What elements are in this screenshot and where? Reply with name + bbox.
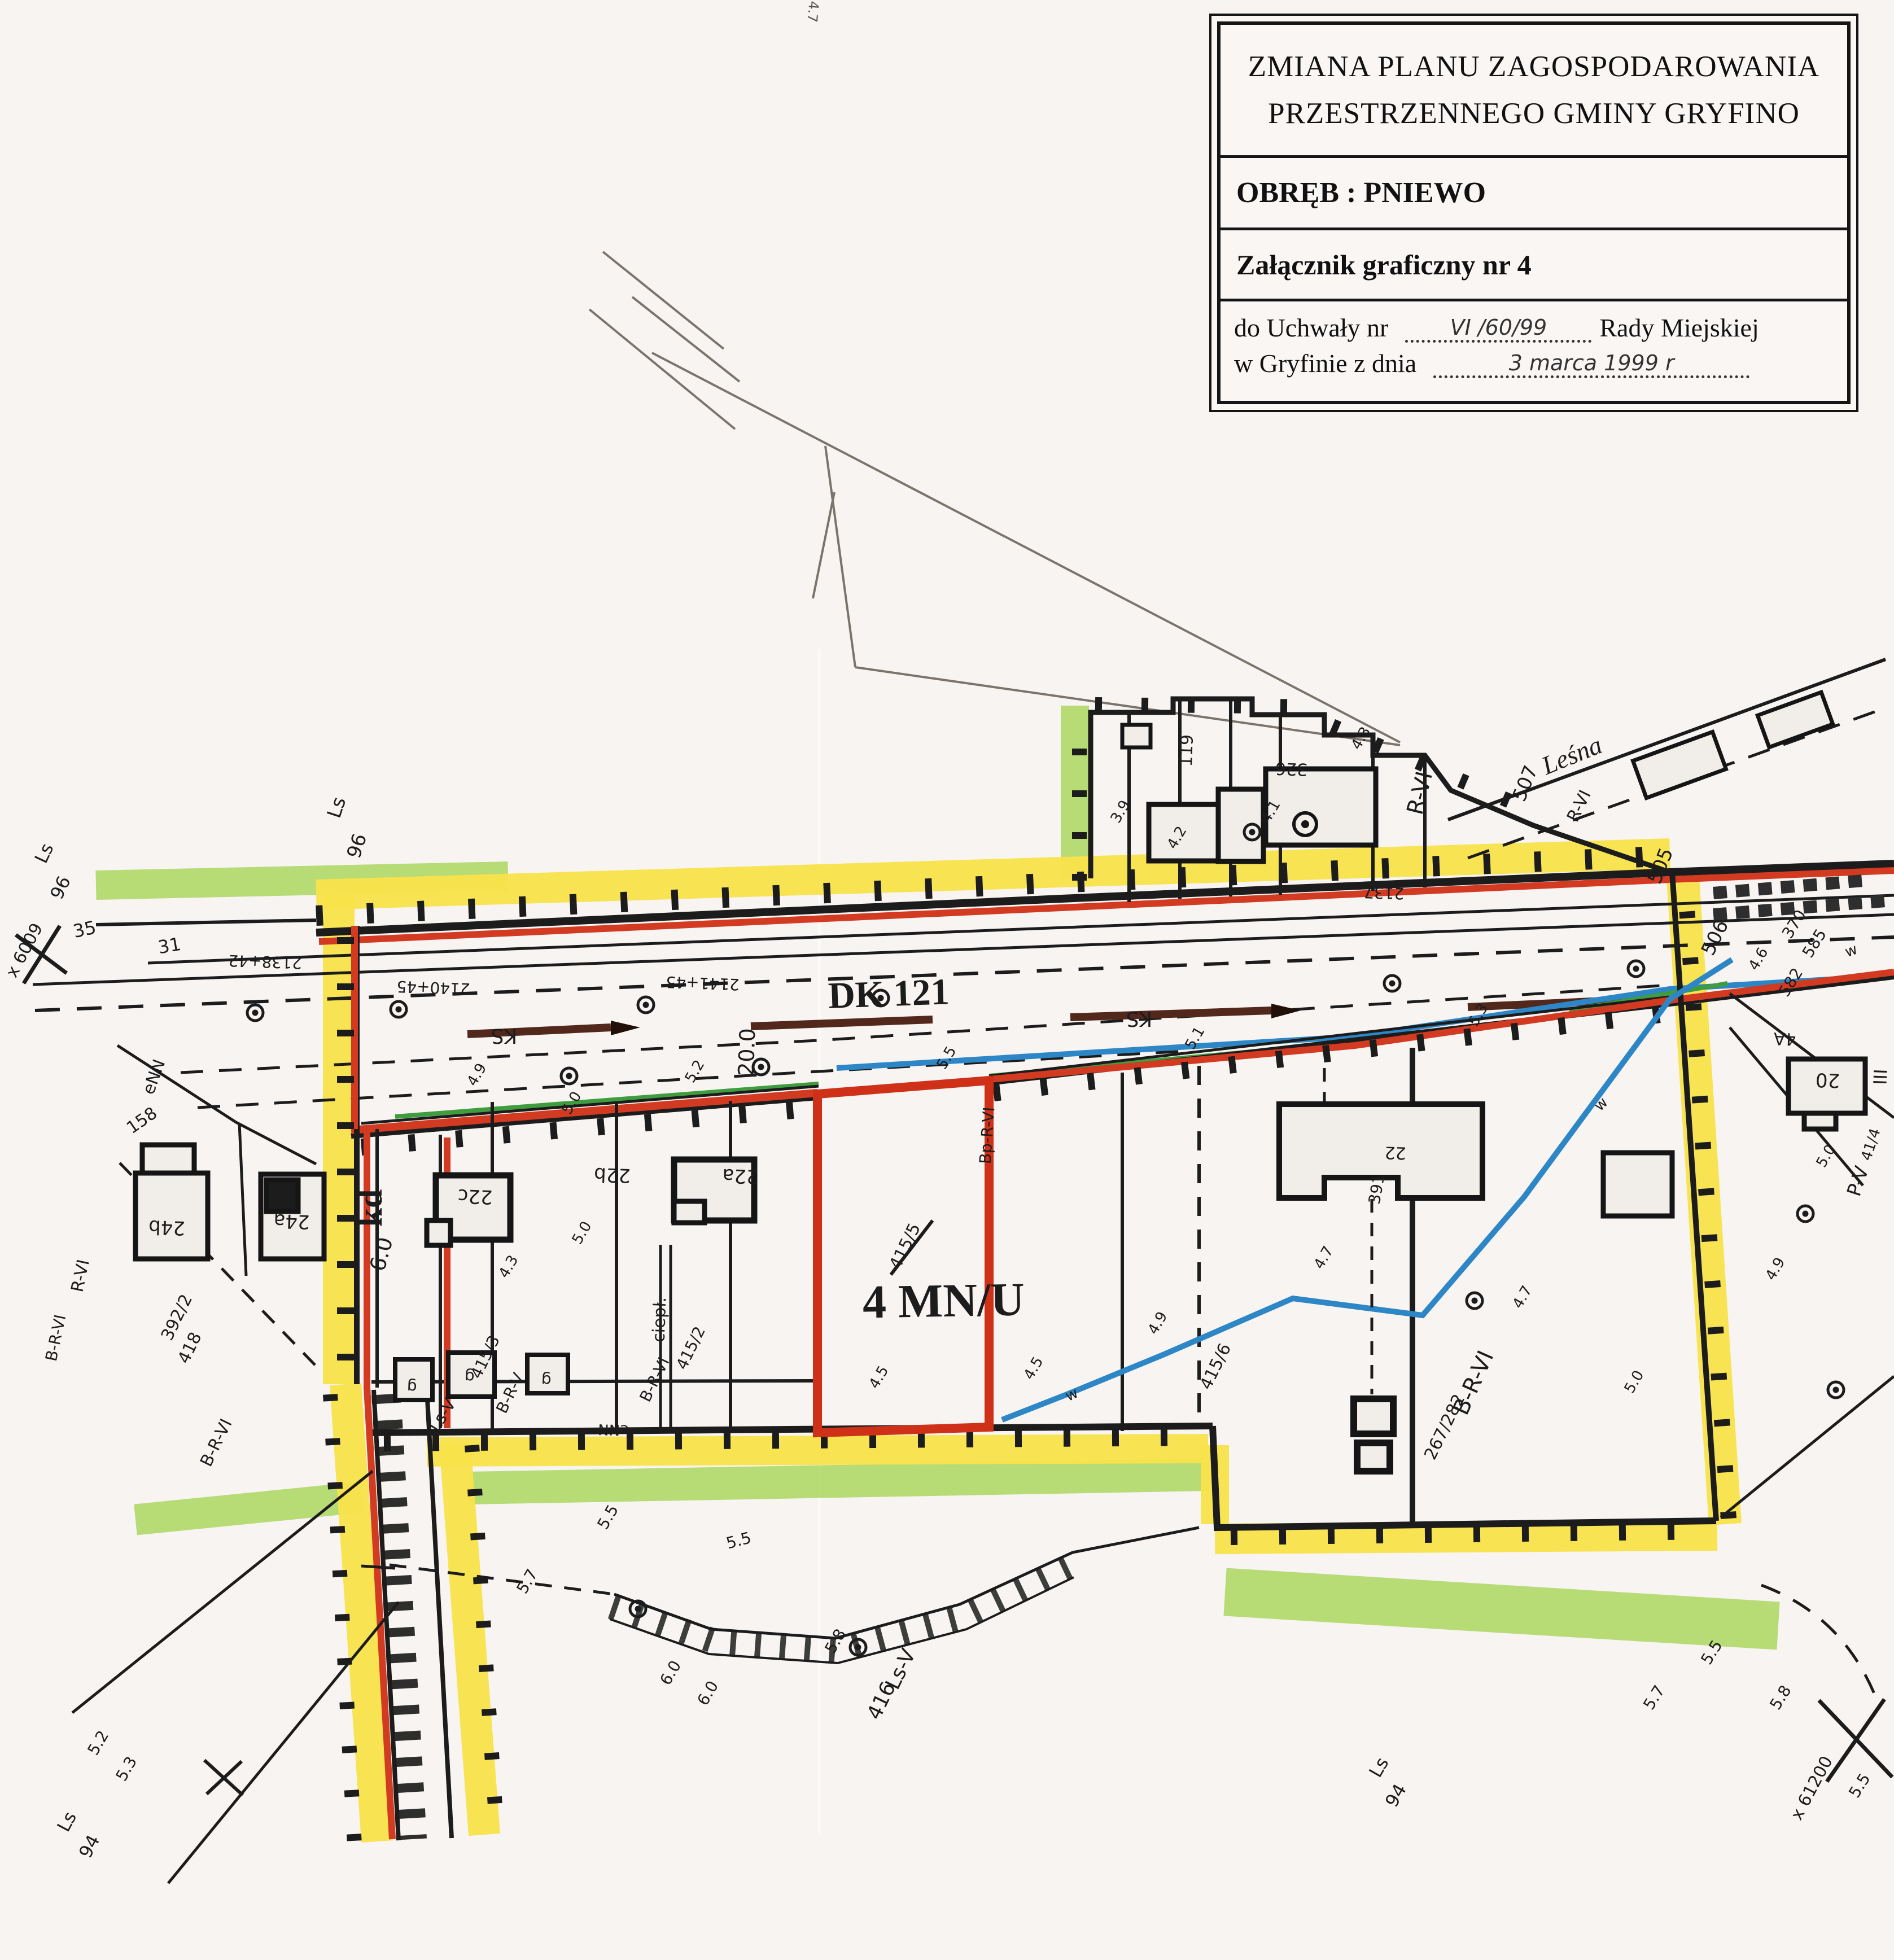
map-label: 5.8 — [1766, 1682, 1795, 1713]
map-label: 415/2 — [672, 1323, 709, 1372]
map-label: 5.5 — [593, 1502, 622, 1533]
title-block: ZMIANA PLANU ZAGOSPODAROWANIA PRZESTRZEN… — [1209, 14, 1858, 412]
map-label: 4.9 — [1145, 1309, 1171, 1338]
map-label: 326 — [1275, 758, 1307, 779]
map-label: 2140+45 — [396, 977, 470, 999]
map-label: DK 121 — [828, 971, 950, 1016]
map-label: 4.9 — [1762, 1255, 1789, 1284]
title-block-inner: ZMIANA PLANU ZAGOSPODAROWANIA PRZESTRZEN… — [1217, 21, 1851, 404]
map-label: 4A — [1773, 1028, 1796, 1048]
map-label: Ls — [323, 794, 351, 821]
map-label: 5.7 — [513, 1566, 541, 1597]
obreb-row: OBRĘB : PNIEWO — [1221, 158, 1847, 230]
map-label: 22b — [594, 1163, 631, 1187]
map-label: w — [1843, 941, 1860, 961]
plan-title-line1: ZMIANA PLANU ZAGOSPODAROWANIA — [1221, 43, 1847, 90]
tree-symbol — [561, 1068, 577, 1084]
map-label: 4.6 — [1746, 945, 1772, 974]
map-label: 2141+45 — [666, 973, 740, 994]
uchwala-number-handwritten: VI /60/99 — [1405, 316, 1591, 343]
map-label: 24a — [273, 1209, 310, 1233]
uchwala-prefix: do Uchwały nr — [1234, 313, 1388, 343]
map-label: ciepł. — [649, 1297, 671, 1343]
map-label: 5.7 — [1639, 1682, 1669, 1713]
scanned-plan-sheet: { "title_block": { "line1": "ZMIANA PLAN… — [0, 0, 1894, 1960]
map-label: 415/5 — [886, 1220, 925, 1272]
tree-symbol — [391, 1001, 406, 1017]
uchwala-suffix: Rady Miejskiej — [1599, 313, 1759, 343]
date-handwritten: 3 marca 1999 r — [1433, 352, 1749, 378]
tree-symbol — [1467, 1293, 1482, 1309]
map-label: 5.3 — [112, 1753, 141, 1784]
tree-symbol — [1828, 1382, 1844, 1398]
map-label: 4.9 — [464, 1061, 491, 1090]
map-label: 31 — [156, 933, 183, 958]
map-label: kd — [352, 1189, 389, 1227]
plan-title: ZMIANA PLANU ZAGOSPODAROWANIA PRZESTRZEN… — [1221, 25, 1847, 158]
map-label: 5.5 — [1845, 1770, 1874, 1801]
map-label: 507 — [1508, 762, 1542, 804]
map-label: g — [406, 1378, 417, 1397]
map-label: B-R-VI — [42, 1313, 70, 1363]
map-label: eNN — [598, 1420, 629, 1438]
map-label: R-VI — [1402, 769, 1438, 817]
flow-arrow — [1271, 1004, 1301, 1018]
map-label: B-R-VI — [196, 1416, 237, 1470]
map-label: R-VI — [1563, 787, 1595, 825]
map-label: 5.5 — [724, 1528, 754, 1552]
map-label: R-VI — [68, 1258, 94, 1294]
map-label: Ls — [53, 1808, 81, 1835]
map-label: Ls — [1364, 1753, 1393, 1781]
map-label: 5.0 — [1813, 1142, 1840, 1171]
map-label: 94 — [75, 1831, 104, 1862]
map-label: 94 — [1381, 1780, 1411, 1810]
map-label: 96 — [46, 873, 75, 903]
map-label: III — [1870, 1069, 1892, 1086]
map-label: 585 — [1799, 926, 1830, 961]
tree-symbol — [1384, 975, 1400, 991]
map-label: 2138+42 — [228, 951, 302, 973]
map-label: 5.0 — [1621, 1368, 1648, 1397]
map-label: 5.5 — [934, 1044, 960, 1073]
tree-symbol — [1628, 961, 1644, 977]
map-label: 6.0 — [693, 1678, 722, 1709]
map-label: B-R-V — [492, 1370, 528, 1416]
map-label: 4.7 — [1510, 1283, 1536, 1312]
map-label: 119 — [1176, 734, 1197, 767]
map-label: 22a — [722, 1164, 759, 1188]
map-label: 22c — [457, 1184, 493, 1208]
plan-title-line2: PRZESTRZENNEGO GMINY GRYFINO — [1221, 90, 1847, 137]
map-label: x 6009 — [2, 920, 47, 981]
map-label: g — [541, 1371, 552, 1390]
tree-symbol — [638, 997, 654, 1013]
map-label: 4 MN/U — [862, 1274, 1025, 1329]
map-label: 5.0 — [569, 1219, 596, 1248]
road-corridor — [33, 856, 1894, 1147]
map-label: Bp-R-VI — [976, 1106, 999, 1165]
map-label: 4.7 — [1311, 1244, 1337, 1272]
map-label: 4.5 — [866, 1363, 893, 1392]
flow-arrow — [611, 1021, 640, 1035]
zalacznik-row: Załącznik graficzny nr 4 — [1221, 230, 1847, 301]
map-label: 20.0 — [734, 1027, 760, 1076]
map-label: 2137 — [1363, 883, 1404, 903]
map-label: 6.0 — [656, 1657, 685, 1688]
map-label: 4.7 — [804, 0, 821, 23]
uchwala-row: do Uchwały nr VI /60/99 Rady Miejskiej w… — [1221, 301, 1847, 401]
map-label: 4.3 — [496, 1253, 522, 1281]
tree-symbol — [1797, 1206, 1813, 1222]
map-label: 5.2 — [682, 1057, 708, 1086]
map-label: KS — [491, 1024, 517, 1047]
map-label: 96 — [343, 831, 371, 861]
tree-symbol — [247, 1005, 263, 1021]
map-label: 5.2 — [84, 1727, 112, 1758]
map-label: Ls — [30, 840, 58, 867]
map-label: 267/282 — [1420, 1391, 1469, 1463]
map-label: 20 — [1815, 1068, 1840, 1091]
map-label: 4.5 — [1021, 1354, 1047, 1383]
map-label: 22 — [1384, 1142, 1406, 1162]
map-label: 5.8 — [821, 1626, 850, 1657]
map-label: 4.3 — [1348, 724, 1375, 753]
map-label: 24b — [148, 1215, 186, 1239]
map-label: 415/6 — [1196, 1340, 1235, 1393]
map-label: g — [464, 1368, 475, 1387]
map-label: Ls-V — [881, 1645, 921, 1693]
map-label: w — [1591, 1094, 1611, 1114]
date-prefix: w Gryfinie z dnia — [1234, 348, 1416, 378]
map-label: 41/4 — [1858, 1126, 1884, 1163]
map-label: KS — [1126, 1007, 1152, 1030]
map-label: x 61200 — [1787, 1753, 1837, 1823]
map-label: 158 — [123, 1103, 161, 1138]
map-label: 35 — [71, 916, 98, 942]
